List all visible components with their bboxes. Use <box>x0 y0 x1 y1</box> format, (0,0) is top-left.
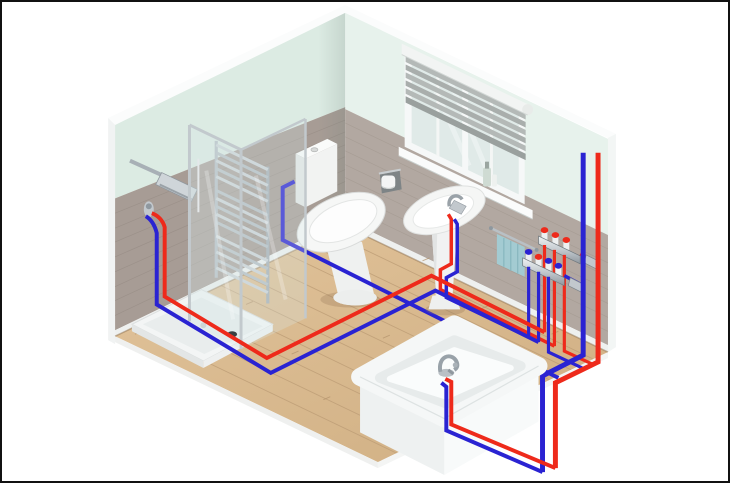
rail-bracket <box>535 248 539 252</box>
shower-enclosure-glass <box>189 119 305 349</box>
rail-bracket <box>489 226 493 230</box>
flush-button <box>311 148 318 152</box>
mixer-knob <box>146 203 152 209</box>
isometric-scene <box>2 2 728 481</box>
toilet-paper-holder <box>379 170 402 194</box>
bathroom-plumbing-illustration <box>0 0 730 483</box>
toilet-foot <box>333 290 377 306</box>
tp-roll <box>381 176 395 189</box>
right-wall-outer-edge <box>608 134 616 352</box>
glass-pane-return <box>241 119 305 349</box>
left-wall-outer-edge <box>108 118 115 344</box>
